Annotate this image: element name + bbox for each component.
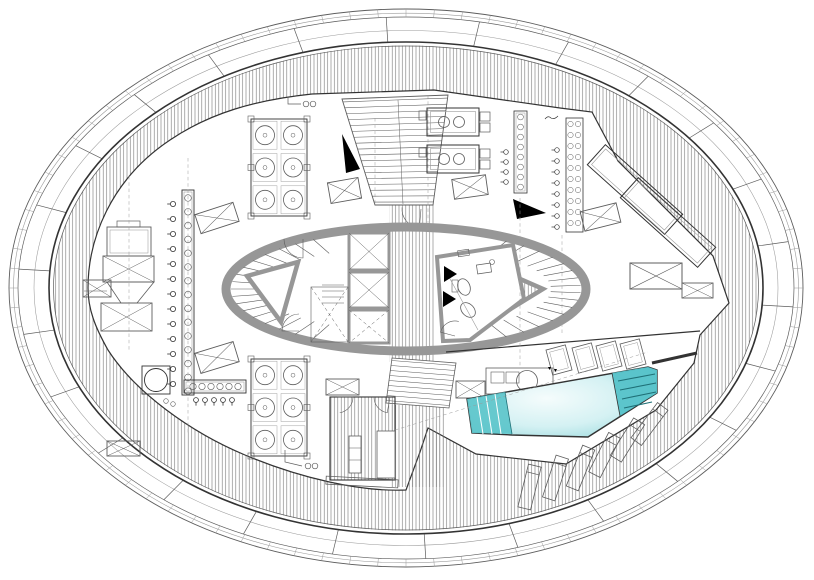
facade-mullions-tick [434, 10, 435, 18]
facade-mullions-tick [72, 137, 80, 141]
facade-mullions-tick [592, 43, 596, 50]
facade-mullions-tick [592, 526, 596, 533]
facade-panel-dividers-tick [689, 123, 714, 138]
facade-mullions-tick [770, 383, 778, 386]
pool-steps [467, 392, 512, 434]
facade-mullions-tick [759, 172, 767, 175]
facade-panel-dividers-tick [710, 417, 736, 430]
facade-panel-dividers-tick [762, 305, 793, 307]
facade-mullions-tick [639, 65, 644, 71]
facade-mullions-tick [793, 307, 802, 308]
facade-mullions-tick [216, 526, 220, 533]
facade-panel-dividers-tick [294, 29, 303, 53]
facade-mullions-tick [616, 53, 621, 60]
facade-mullions-tick [660, 493, 666, 499]
facade-mullions-tick [146, 493, 152, 499]
floor-plan-drawing [9, 9, 803, 567]
floor-plan-canvas [0, 0, 814, 580]
facade-mullions-tick [168, 65, 173, 71]
facade-mullions-tick [747, 154, 755, 158]
facade-mullions-tick [378, 558, 379, 566]
facade-mullions-tick [717, 121, 724, 126]
locker-unit-1 [349, 436, 361, 473]
facade-panel-dividers-tick [386, 17, 388, 42]
facade-mullions-tick [378, 10, 379, 18]
spine-hatch-lower [390, 405, 444, 487]
facade-mullions-tick [216, 43, 220, 50]
facade-panel-dividers-tick [733, 179, 761, 189]
facade-mullions-tick [732, 435, 740, 439]
facade-panel-dividers-tick [51, 387, 79, 397]
facade-mullions-tick [146, 77, 152, 83]
facade-panel-dividers-tick [424, 534, 426, 559]
facade-mullions-tick [10, 307, 19, 308]
facade-panel-dividers-tick [332, 530, 338, 555]
facade-mullions-tick [639, 505, 644, 511]
facade-mullions-tick [45, 401, 53, 404]
facade-panel-dividers-tick [556, 42, 569, 65]
facade-mullions-tick [770, 190, 778, 193]
facade-panel-dividers-tick [76, 146, 102, 159]
facade-mullions-tick [434, 558, 435, 566]
facade-mullions-tick [34, 190, 42, 193]
locker-unit-2-frame [377, 431, 395, 478]
facade-mullions-tick [34, 383, 42, 386]
facade-panel-dividers-tick [474, 22, 480, 47]
facade-panel-dividers-tick [208, 55, 224, 77]
layer-locker-room [326, 397, 398, 488]
facade-panel-dividers-tick [37, 205, 67, 213]
facade-mullions-tick [732, 137, 740, 141]
facade-panel-dividers-tick [19, 269, 50, 271]
facade-mullions-tick [660, 77, 666, 83]
locker-unit-2 [377, 431, 395, 478]
facade-panel-dividers-tick [509, 524, 518, 548]
facade-mullions-tick [88, 121, 95, 126]
facade-panel-dividers-tick [243, 511, 256, 534]
spine-hatch-lower-frame [390, 405, 444, 487]
facade-panel-dividers-tick [629, 76, 648, 96]
facade-panel-dividers-tick [98, 438, 123, 453]
facade-panel-dividers-tick [588, 500, 604, 522]
facade-mullions-tick [616, 516, 621, 523]
facade-panel-dividers-tick [164, 480, 183, 500]
facade-mullions-tick [793, 268, 802, 269]
facade-mullions-tick [45, 172, 53, 175]
facade-mullions-tick [747, 418, 755, 422]
facade-mullions-tick [88, 450, 95, 455]
facade-mullions-tick [10, 268, 19, 269]
facade-mullions-tick [72, 435, 80, 439]
locker-unit-1-frame [349, 436, 361, 473]
facade-panel-dividers-tick [746, 363, 776, 371]
facade-mullions-tick [759, 401, 767, 404]
facade-mullions-tick [191, 53, 196, 60]
facade-mullions-tick [168, 505, 173, 511]
facade-mullions-tick [58, 154, 66, 158]
facade-mullions-tick [58, 418, 66, 422]
floor-plan-page [0, 0, 814, 580]
facade-mullions-tick [717, 450, 724, 455]
facade-mullions-tick [191, 516, 196, 523]
